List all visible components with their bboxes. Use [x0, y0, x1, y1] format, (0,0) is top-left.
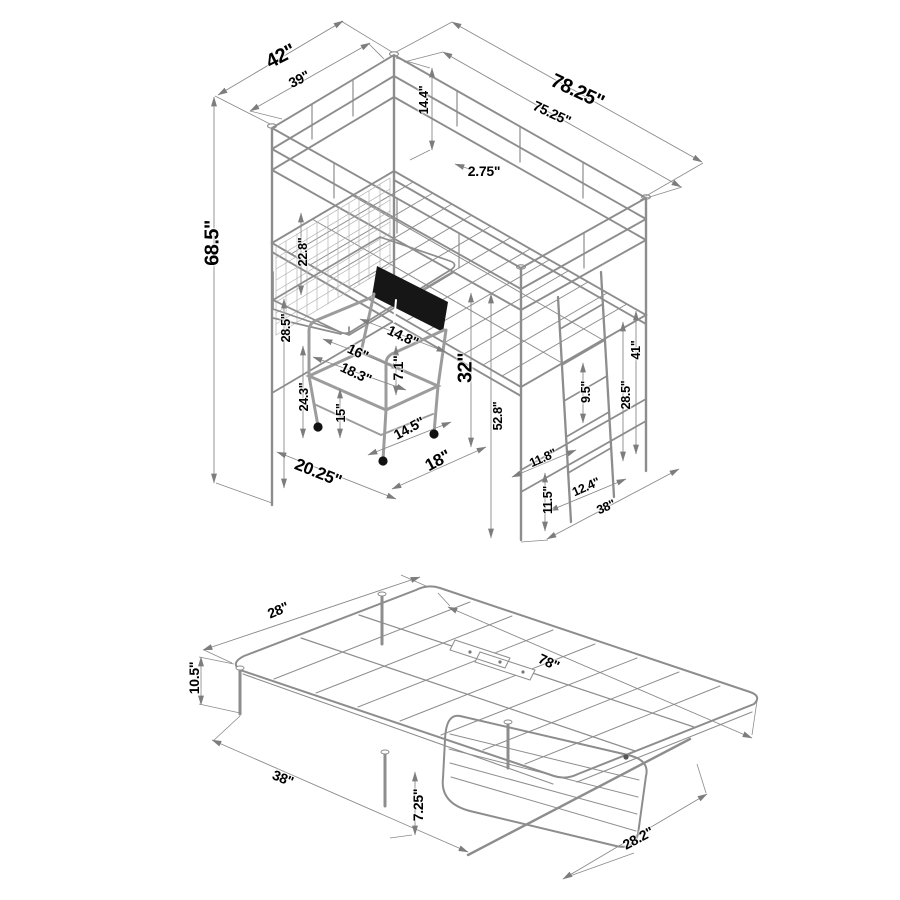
chair-stretchers — [314, 404, 433, 435]
mesh-panel — [276, 178, 390, 335]
futon-hinge-mechanism — [450, 640, 535, 680]
futon-legs — [240, 594, 508, 806]
futon-bar-knob — [623, 754, 628, 759]
futon-deck-tube-edge — [243, 674, 752, 784]
diagram-canvas: 42"39"78.25"75.25"14.4"2.75"68.5"22.8"28… — [0, 0, 900, 900]
ladder-rails — [558, 272, 614, 522]
futon-drawing — [236, 586, 757, 855]
extension-lines — [215, 21, 703, 542]
chair — [309, 266, 448, 466]
futon-deck-outline — [236, 586, 757, 777]
futon-deck-slats — [274, 602, 720, 764]
loft-bed-drawing — [268, 52, 651, 540]
dimension-diagram-svg — [0, 0, 900, 900]
loft-dimension-lines — [214, 21, 703, 542]
futon-dimension-lines — [199, 575, 757, 879]
chair-casters — [313, 422, 438, 465]
